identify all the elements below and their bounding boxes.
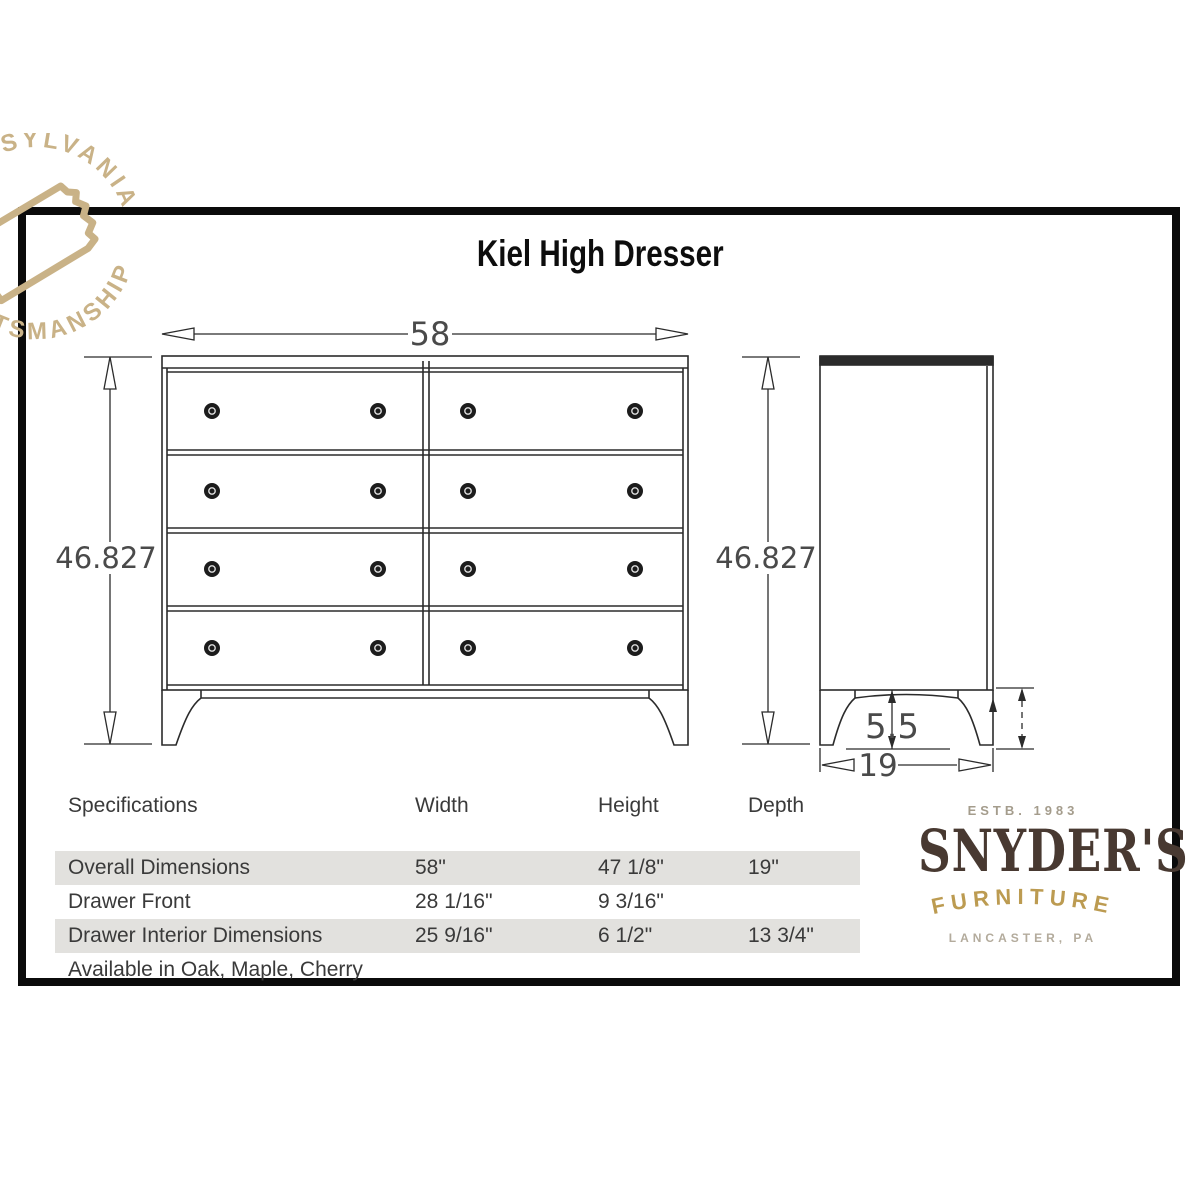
logo-location-text: LANCASTER, PA <box>880 931 1166 945</box>
dimension-depth-19: 19 <box>820 748 993 784</box>
row-height-value: 9 3/16" <box>598 890 748 914</box>
page-title-text: Kiel High Dresser <box>477 233 724 275</box>
table-row: Drawer Interior Dimensions 25 9/16" 6 1/… <box>55 919 860 953</box>
availability-note: Available in Oak, Maple, Cherry <box>55 953 860 987</box>
craftsmanship-watermark: PENNSYLVANIA CRAFTSMANSHIP <box>0 133 142 345</box>
row-depth-value: 19" <box>748 856 860 880</box>
svg-text:PENNSYLVANIA: PENNSYLVANIA <box>0 133 142 214</box>
dimension-leg-height: 5.5 <box>846 690 950 749</box>
row-height-value: 47 1/8" <box>598 856 748 880</box>
row-label: Drawer Front <box>55 890 415 914</box>
watermark-arc-bottom-text: CRAFTSMANSHIP <box>0 258 139 345</box>
table-row: Overall Dimensions 58" 47 1/8" 19" <box>55 851 860 885</box>
svg-text:CRAFTSMANSHIP: CRAFTSMANSHIP <box>0 258 139 345</box>
dimension-leg-dashed <box>996 688 1034 749</box>
side-view-drawing <box>820 356 997 745</box>
table-row: Drawer Front 28 1/16" 9 3/16" <box>55 885 860 919</box>
logo-established-text: ESTB. 1983 <box>880 803 1166 818</box>
row-height-value: 6 1/2" <box>598 924 748 948</box>
watermark-arc-top-text: PENNSYLVANIA <box>0 133 142 214</box>
dimension-front-height: 46.827 <box>55 357 156 744</box>
logo-brand-name: SNYDER'S <box>918 822 1188 880</box>
side-height-dim-label: 46.827 <box>715 541 816 575</box>
technical-drawing: 58 46.827 <box>0 0 1200 1200</box>
col-header-depth: Depth <box>748 794 860 818</box>
row-depth-value: 13 3/4" <box>748 924 860 948</box>
front-height-dim-label: 46.827 <box>55 541 156 575</box>
depth-dim-label: 19 <box>858 748 897 784</box>
spec-table: Specifications Width Height Depth Overal… <box>55 793 860 987</box>
spec-table-header: Specifications Width Height Depth <box>55 793 860 819</box>
row-width-value: 25 9/16" <box>415 924 598 948</box>
leg-height-dim-label: 5.5 <box>865 707 919 747</box>
logo-furniture-arch: FURNITURE <box>880 878 1166 931</box>
row-width-value: 58" <box>415 856 598 880</box>
front-view-drawing <box>162 356 688 745</box>
front-width-dim-label: 58 <box>410 315 451 353</box>
brand-logo: ESTB. 1983 SNYDER'S FURNITURE LANCASTER,… <box>880 803 1166 945</box>
dimension-width-58: 58 <box>162 315 688 353</box>
spec-sheet-page: Kiel High Dresser <box>0 0 1200 1200</box>
col-header-height: Height <box>598 794 748 818</box>
col-header-specifications: Specifications <box>55 794 415 818</box>
logo-furniture-text: FURNITURE <box>929 884 1117 919</box>
dimension-side-height: 46.827 <box>715 357 816 744</box>
svg-text:FURNITURE: FURNITURE <box>929 884 1117 919</box>
page-title: Kiel High Dresser <box>0 233 1200 275</box>
pennsylvania-state-outline-icon <box>0 180 107 304</box>
row-label: Drawer Interior Dimensions <box>55 924 415 948</box>
row-width-value: 28 1/16" <box>415 890 598 914</box>
col-header-width: Width <box>415 794 598 818</box>
row-label: Overall Dimensions <box>55 856 415 880</box>
